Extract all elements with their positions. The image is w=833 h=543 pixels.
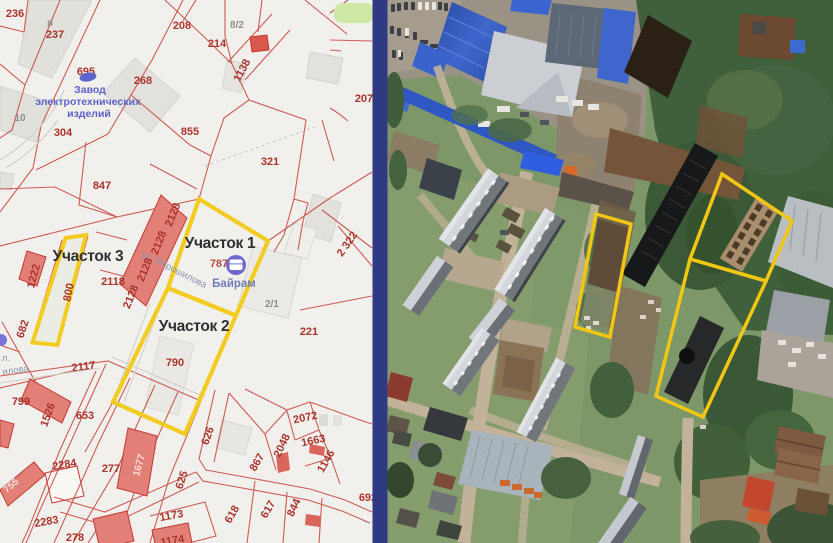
svg-text:2/1: 2/1 — [265, 299, 279, 310]
svg-text:электротехнических: электротехнических — [35, 96, 141, 108]
svg-text:221: 221 — [300, 326, 318, 338]
svg-text:Участок 2: Участок 2 — [159, 318, 230, 335]
svg-text:653: 653 — [76, 410, 94, 422]
svg-text:847: 847 — [93, 180, 111, 192]
svg-text:278: 278 — [66, 532, 84, 543]
svg-text:изделий: изделий — [67, 108, 111, 120]
svg-text:237: 237 — [46, 29, 64, 41]
svg-text:8/2: 8/2 — [230, 20, 244, 31]
svg-text:790: 790 — [166, 357, 184, 369]
svg-text:2118: 2118 — [101, 276, 125, 288]
svg-text:304: 304 — [54, 127, 73, 139]
svg-text:787: 787 — [210, 258, 228, 270]
svg-text:208: 208 — [173, 20, 191, 32]
svg-text:799: 799 — [12, 396, 30, 408]
svg-text:Участок 1: Участок 1 — [185, 235, 256, 252]
svg-text:214: 214 — [208, 38, 227, 50]
svg-text:277: 277 — [102, 463, 120, 475]
svg-text:Участок 3: Участок 3 — [53, 248, 124, 265]
svg-text:я: я — [47, 18, 53, 29]
svg-text:268: 268 — [134, 75, 152, 87]
svg-text:л.: л. — [2, 353, 10, 364]
svg-text:321: 321 — [261, 156, 279, 168]
svg-text:10: 10 — [14, 113, 26, 124]
svg-text:236: 236 — [6, 8, 24, 20]
svg-text:Завод: Завод — [74, 84, 106, 96]
svg-text:Байрам: Байрам — [212, 278, 256, 290]
svg-text:207: 207 — [355, 93, 373, 105]
svg-text:855: 855 — [181, 126, 199, 138]
